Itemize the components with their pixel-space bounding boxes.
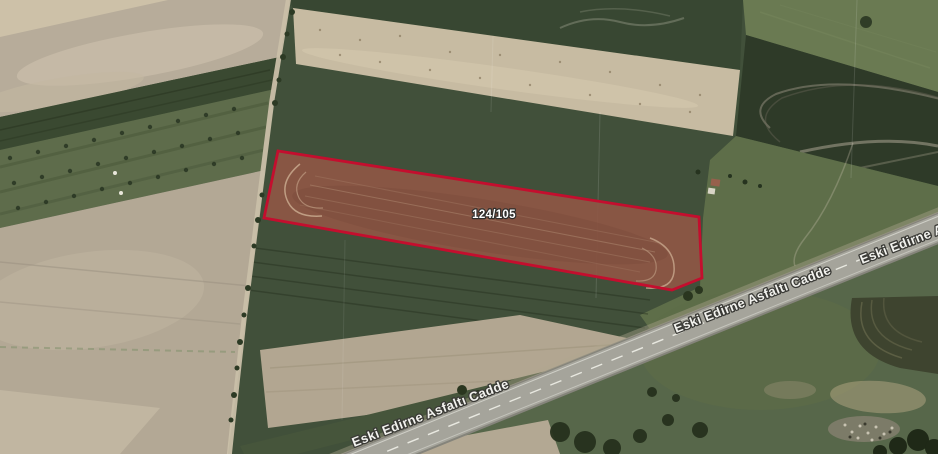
map-viewport[interactable]: 124/105 Eski Edirne Asfaltı Cadde Eski E… — [0, 0, 938, 454]
parcel-number-label: 124/105 — [472, 209, 516, 221]
rubble-pile — [828, 416, 900, 442]
